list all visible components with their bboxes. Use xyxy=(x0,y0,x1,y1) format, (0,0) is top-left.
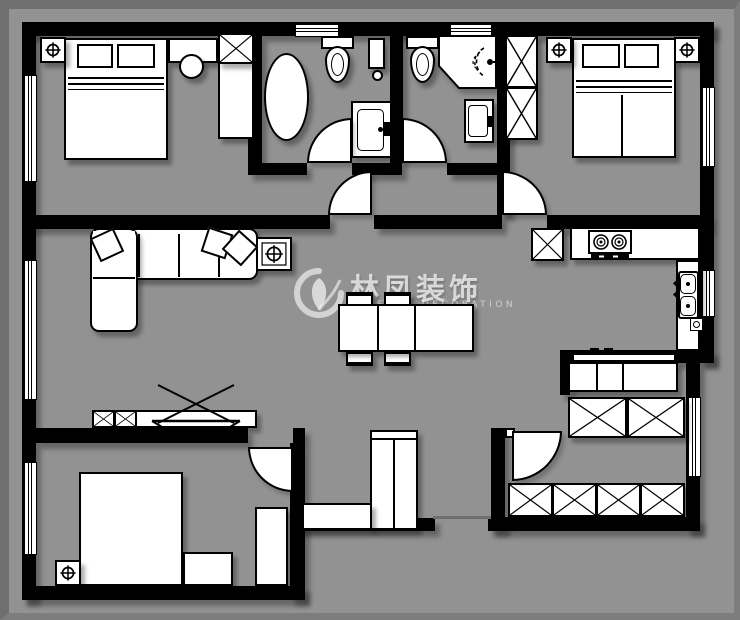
ceiling-light-bedroom2-b xyxy=(674,37,700,63)
door-bedroom2 xyxy=(502,171,547,215)
dining-chair-bottom-right xyxy=(384,352,411,366)
desk-divider xyxy=(596,364,598,390)
wall-living-south-a xyxy=(36,428,248,443)
wall-baths-south-c xyxy=(447,163,502,175)
shoe-cabinet-x-4 xyxy=(640,483,685,517)
door-bedroom3 xyxy=(248,447,293,492)
wall-entry-west xyxy=(491,428,505,531)
wall-living-south-b xyxy=(293,428,305,443)
lamp-bedroom1 xyxy=(179,54,204,79)
window-bedroom1-left xyxy=(24,75,37,182)
study-wardrobe-x-a xyxy=(568,397,627,438)
wall-right-jog xyxy=(686,350,714,363)
wall-bottom-left xyxy=(22,586,305,600)
sofa-cushion-line xyxy=(138,234,140,277)
desk-shelf xyxy=(572,353,676,362)
window-bedroom3-left xyxy=(24,462,37,555)
sink-drain-dot xyxy=(686,282,690,286)
threshold-line xyxy=(433,516,491,519)
wall-baths-south-a xyxy=(248,163,307,175)
desk-item xyxy=(604,348,613,355)
gas-stove xyxy=(588,230,632,260)
tv-stand-x-b xyxy=(114,410,137,428)
window-bedroom2-right xyxy=(702,87,715,167)
sofa-cushion-line xyxy=(178,234,180,277)
blanket-lines xyxy=(68,77,164,90)
tv-symbol xyxy=(148,383,244,428)
sink-drain-dot xyxy=(686,304,690,308)
washbasin-bath2-bowl xyxy=(468,105,488,137)
bed-bedroom3 xyxy=(79,472,183,586)
bath1-shelf xyxy=(368,38,385,69)
window-study-right xyxy=(688,397,701,477)
door-bath1 xyxy=(307,118,352,163)
blanket-divider xyxy=(621,95,623,156)
window-kitchen-right xyxy=(702,270,715,317)
sofa-chaise-line xyxy=(93,277,135,279)
pillow xyxy=(582,44,620,68)
floor-drain xyxy=(690,318,703,331)
washbasin-bath2-faucet xyxy=(488,116,493,127)
desk-divider xyxy=(622,364,624,390)
pillow xyxy=(117,44,155,68)
floor-drain-circle xyxy=(693,321,700,328)
fridge xyxy=(531,228,564,261)
toilet1-seat xyxy=(331,53,344,76)
shoe-cabinet-x-1 xyxy=(508,483,553,517)
dining-chair-bottom-left xyxy=(346,352,373,366)
floor-plan-page: 林凤装饰 LINFENG DECORATION xyxy=(0,0,740,620)
nightstand-bedroom3 xyxy=(183,552,233,586)
corner-shower xyxy=(438,35,497,89)
shoe-cabinet-x-2 xyxy=(552,483,597,517)
bathtub xyxy=(264,53,309,141)
hall-cabinet-bench xyxy=(302,503,372,530)
toilet2-seat xyxy=(416,53,429,76)
toilet-paper-holder xyxy=(372,70,383,81)
cabinet-bedroom3 xyxy=(255,507,288,586)
ceiling-light-bedroom1 xyxy=(40,37,66,63)
wardrobe-x-bedroom2-a xyxy=(505,35,538,88)
shoe-cabinet-x-3 xyxy=(596,483,641,517)
hall-cabinet-divider xyxy=(393,440,395,528)
door-bath2 xyxy=(402,118,447,163)
wall-top xyxy=(22,22,714,36)
door-hall-living xyxy=(328,171,372,215)
wall-entry-bottom xyxy=(488,517,700,531)
watermark-logo xyxy=(294,268,344,318)
wardrobe-x-bedroom2-b xyxy=(505,87,538,140)
ceiling-light-bedroom3 xyxy=(55,560,81,586)
wardrobe-x-bedroom1 xyxy=(218,33,254,64)
table-divider xyxy=(377,306,379,350)
washbasin-bath1-faucet xyxy=(384,122,390,136)
pillow xyxy=(624,44,659,68)
door-entry xyxy=(512,431,562,481)
tv-stand-x-a xyxy=(92,410,115,428)
wardrobe-lower-bedroom1 xyxy=(218,62,254,139)
ceiling-light-living xyxy=(256,237,292,271)
table-divider xyxy=(414,306,416,350)
window-living-left xyxy=(24,260,37,400)
ceiling-light-bedroom2-a xyxy=(546,37,572,63)
pillow xyxy=(77,44,113,68)
wall-corridor-south-b xyxy=(374,215,502,229)
study-wardrobe-x-b xyxy=(627,397,685,438)
washbasin-bath1-bowl xyxy=(357,109,384,151)
desk-item xyxy=(590,348,599,355)
wall-corridor-south-a xyxy=(22,215,330,229)
dining-table xyxy=(338,304,474,352)
blanket-lines xyxy=(576,80,672,93)
